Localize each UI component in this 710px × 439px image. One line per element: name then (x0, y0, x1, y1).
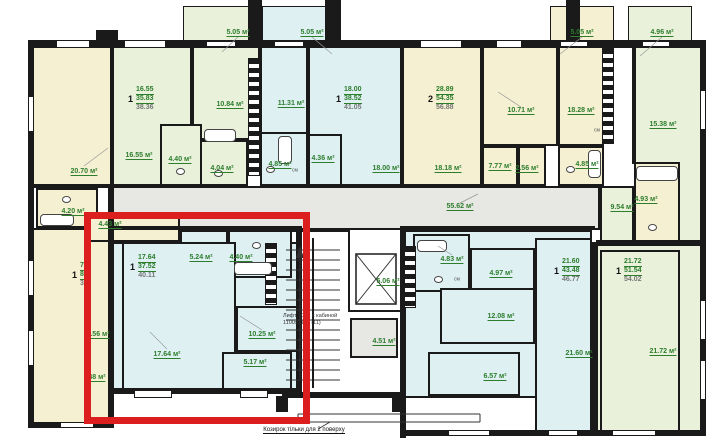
wall-segment (403, 226, 595, 230)
area-label: 6.57 м² (483, 373, 506, 381)
apartment-area-line: 28.89 (436, 86, 454, 95)
wall-segment (28, 184, 112, 188)
apartment-area-line: 18.00 (344, 86, 362, 95)
apartment-a-label: 116.5535.8338.36 (128, 86, 154, 112)
area-label: 20.70 м² (71, 168, 98, 176)
window (28, 96, 34, 132)
wall-segment (592, 242, 598, 436)
window (700, 90, 706, 130)
room-9-54 (600, 186, 634, 244)
window (700, 360, 706, 400)
wall-segment (392, 396, 404, 412)
apartment-area-line: 54.35 (436, 95, 454, 104)
toilet-icon (434, 276, 443, 283)
room-20-70 (32, 44, 112, 186)
apartment-area-line: 38.36 (136, 104, 154, 112)
area-label: 9.54 м² (610, 204, 633, 212)
window (274, 41, 304, 47)
canopy-outline (298, 414, 480, 422)
area-label: 4.04 м² (210, 165, 233, 173)
area-label: 4.96 м² (650, 29, 673, 37)
apartment-number: 1 (128, 94, 133, 104)
vent-shaft (248, 58, 260, 176)
window (448, 430, 490, 436)
wall-segment (566, 0, 580, 46)
area-label: 10.84 м² (217, 101, 244, 109)
area-label: 18.00 м² (373, 165, 400, 173)
area-label: см (454, 278, 460, 283)
room-4-40-a (160, 124, 202, 186)
window (28, 330, 34, 366)
bathtub-icon (636, 166, 678, 181)
apartment-area-line: 38.52 (344, 95, 362, 104)
area-label: 4.20 м² (61, 208, 84, 216)
area-label: 2.56 м² (515, 165, 538, 173)
apartment-area-line: 35.83 (136, 95, 154, 104)
area-label: 4.97 м² (489, 270, 512, 278)
canopy-note: Козирок тільки для 2 поверху (244, 427, 364, 433)
floor-plan: Лифт 1000 с кабиной 1100х2100 (11) Козир… (0, 0, 710, 439)
highlight-red-box (84, 212, 310, 424)
area-label: 4.85 м² (268, 161, 291, 169)
toilet-icon (648, 224, 657, 231)
area-label: 7.77 м² (488, 163, 511, 171)
area-label: 5.06 м² (376, 278, 399, 286)
apartment-h-label: 121.7251.5454.02 (616, 258, 642, 284)
apartment-number: 1 (336, 94, 341, 104)
wall-segment (596, 240, 706, 245)
window (56, 40, 90, 48)
wall-segment (96, 30, 118, 42)
area-label: 16.55 м² (126, 152, 153, 160)
area-label: 18.28 м² (568, 107, 595, 115)
apartment-area-line: 16.55 (136, 86, 154, 95)
area-label: 4.85 м² (575, 161, 598, 169)
area-label: 15.38 м² (650, 121, 677, 129)
window (496, 40, 522, 48)
window (420, 40, 462, 48)
window (206, 41, 236, 47)
apartment-area-line: 43.48 (562, 267, 580, 276)
apartment-number: 1 (554, 266, 559, 276)
apartment-number: 2 (428, 94, 433, 104)
apartment-b-label: 118.0038.5241.05 (336, 86, 362, 112)
room-10-71 (482, 44, 558, 146)
apartment-number: 1 (616, 266, 621, 276)
toilet-icon (176, 168, 185, 175)
window (560, 41, 588, 47)
bathtub-icon (278, 136, 292, 164)
apartment-g-label: 121.6043.4846.77 (554, 258, 580, 284)
area-label: 4.83 м² (440, 256, 463, 264)
area-label: см (594, 129, 600, 134)
area-label: 21.60 м² (566, 350, 593, 358)
apartment-area-line: 54.02 (624, 276, 642, 284)
bathtub-icon (417, 240, 447, 252)
vent-shaft (602, 48, 614, 144)
wall-segment (248, 0, 262, 46)
toilet-icon (62, 196, 71, 203)
area-label: 4.40 м² (168, 156, 191, 164)
apartment-area-line: 46.77 (562, 276, 580, 284)
toilet-icon (566, 166, 575, 173)
area-label: 4.51 м² (372, 338, 395, 346)
elevator-shaft (348, 228, 402, 312)
area-label: 12.08 м² (488, 313, 515, 321)
apartment-area-line: 41.05 (344, 104, 362, 112)
area-label: 5.05 м² (300, 29, 323, 37)
area-label: см (292, 169, 298, 174)
room-4-04 (200, 140, 248, 186)
apartment-area-line: 51.54 (624, 267, 642, 276)
apartment-area-line: 56.88 (436, 104, 454, 112)
window (28, 260, 34, 296)
window (612, 430, 656, 436)
apartment-number: 1 (72, 270, 77, 280)
apartment-area-line: 21.60 (562, 258, 580, 267)
area-label: 18.18 м² (435, 165, 462, 173)
window (548, 430, 578, 436)
area-label: 4.36 м² (311, 155, 334, 163)
area-label: 5.05 м² (570, 29, 593, 37)
wall-segment (632, 44, 636, 164)
apartment-area-line: 21.72 (624, 258, 642, 267)
vent-shaft (404, 246, 416, 308)
area-label: 4.93 м² (634, 196, 657, 204)
window (642, 41, 670, 47)
bathtub-icon (204, 129, 236, 142)
apartment-c-label: 228.8954.3556.88 (428, 86, 454, 112)
area-label: 10.71 м² (508, 107, 535, 115)
area-label: 55.62 м² (447, 203, 474, 211)
area-label: 11.31 м² (278, 100, 305, 108)
area-label: 21.72 м² (650, 348, 677, 356)
window (124, 40, 166, 48)
wall-segment (325, 0, 341, 46)
room-11-31 (260, 44, 308, 134)
window (700, 300, 706, 340)
area-label: 5.05 м² (226, 29, 249, 37)
